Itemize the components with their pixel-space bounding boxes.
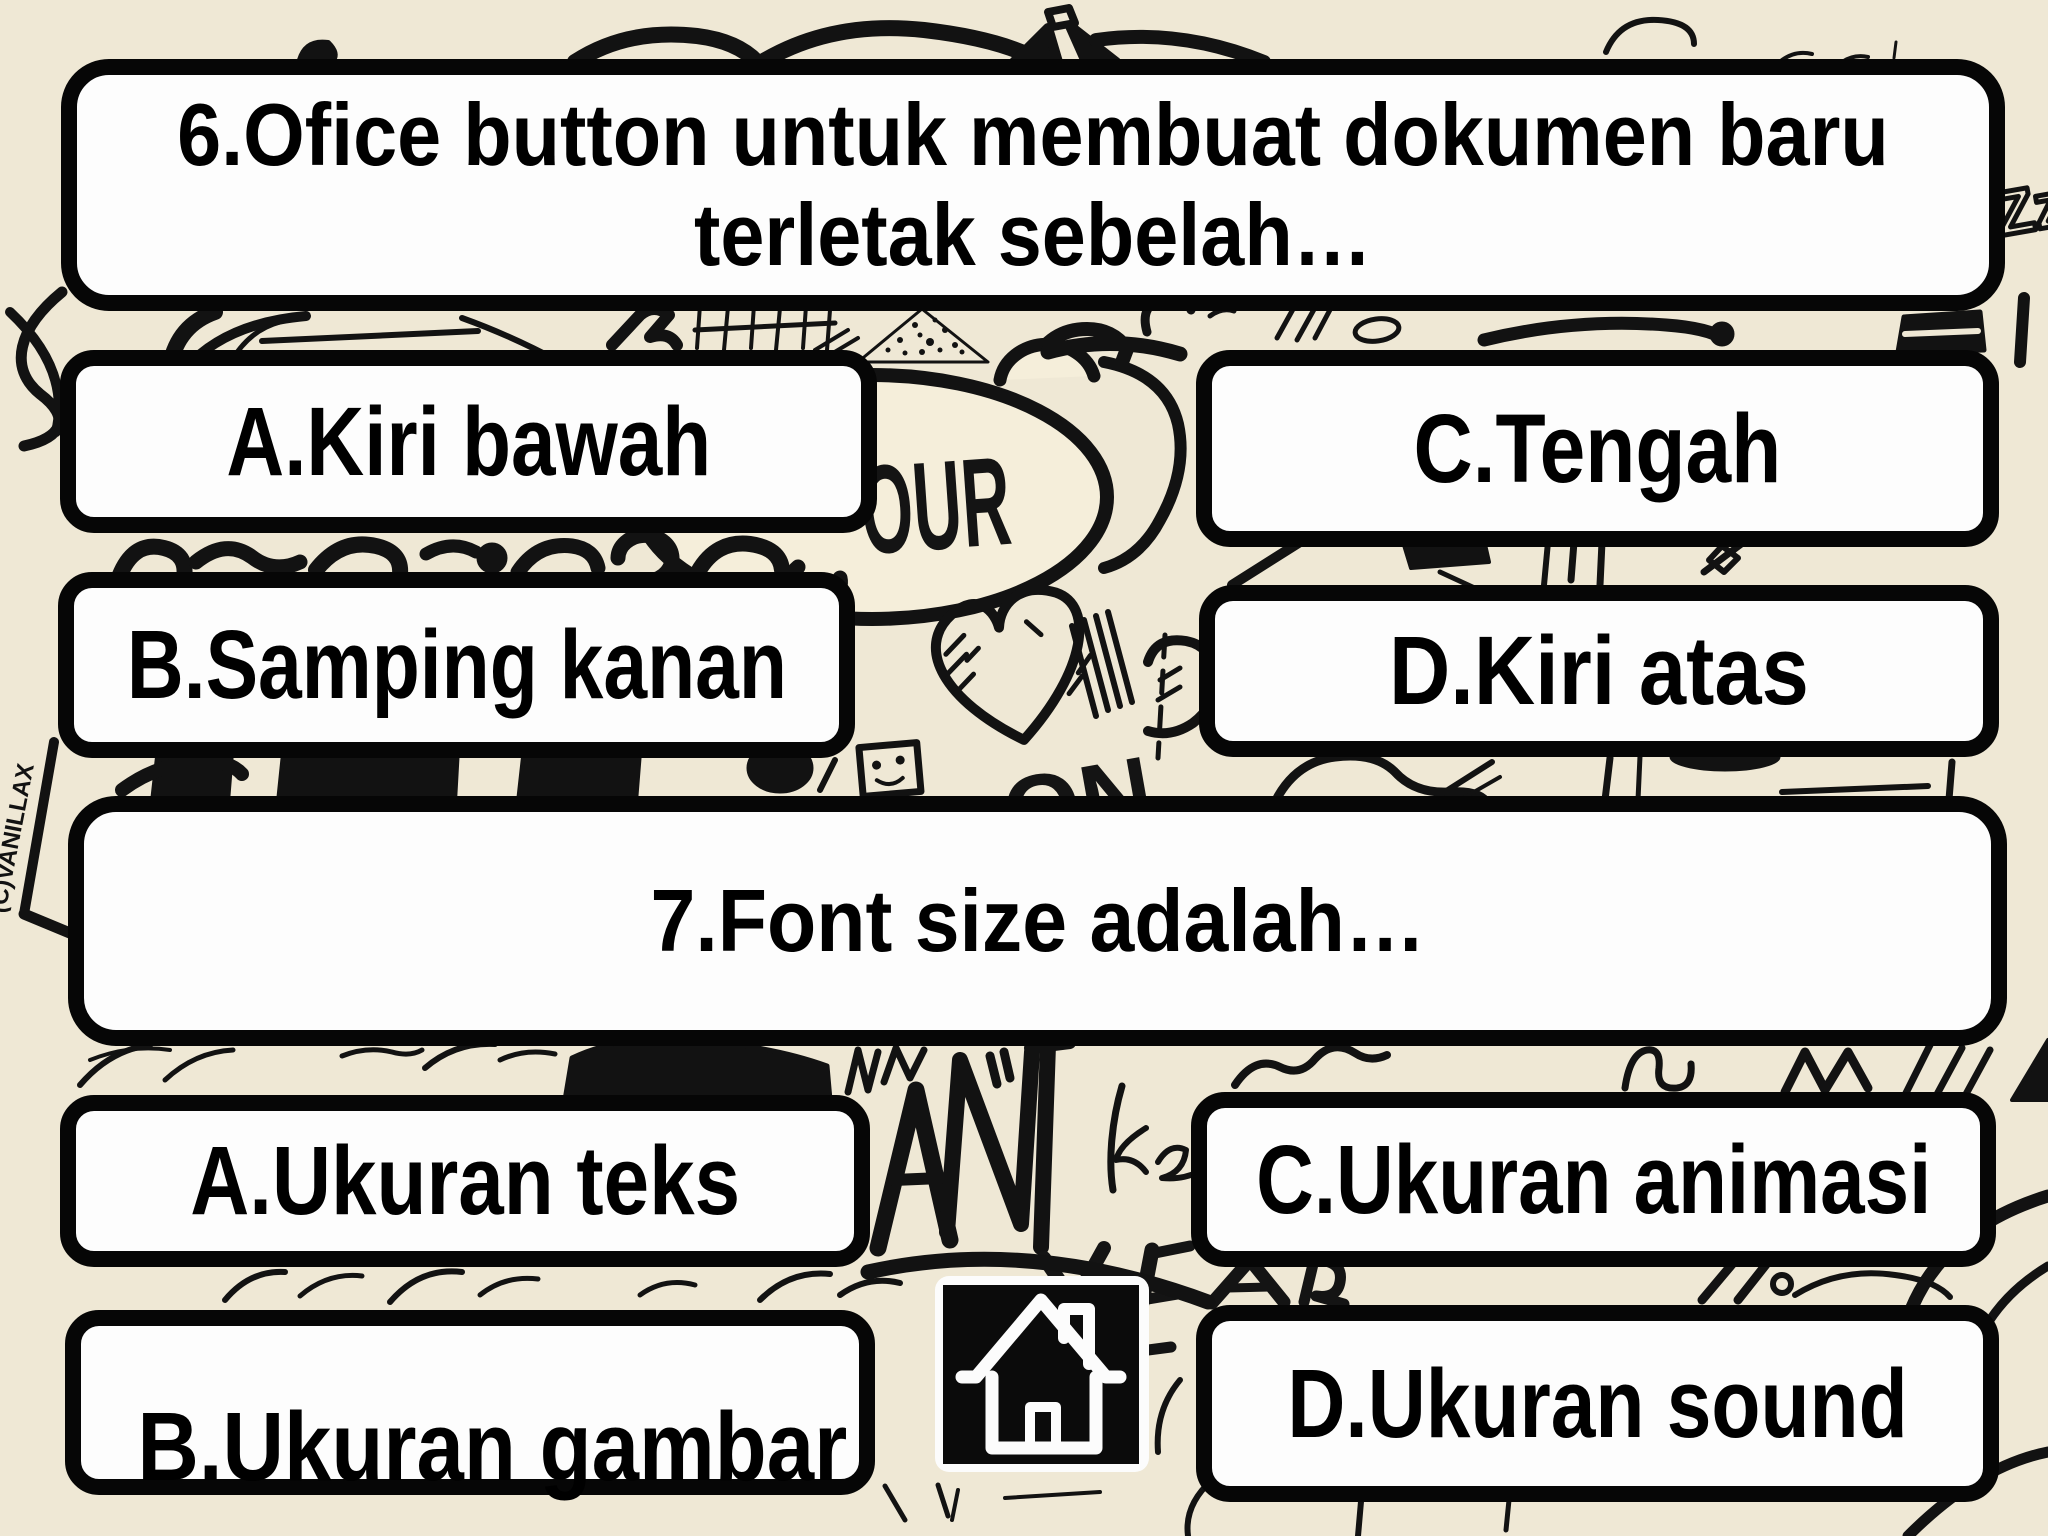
svg-text:OUR: OUR	[856, 430, 1015, 581]
